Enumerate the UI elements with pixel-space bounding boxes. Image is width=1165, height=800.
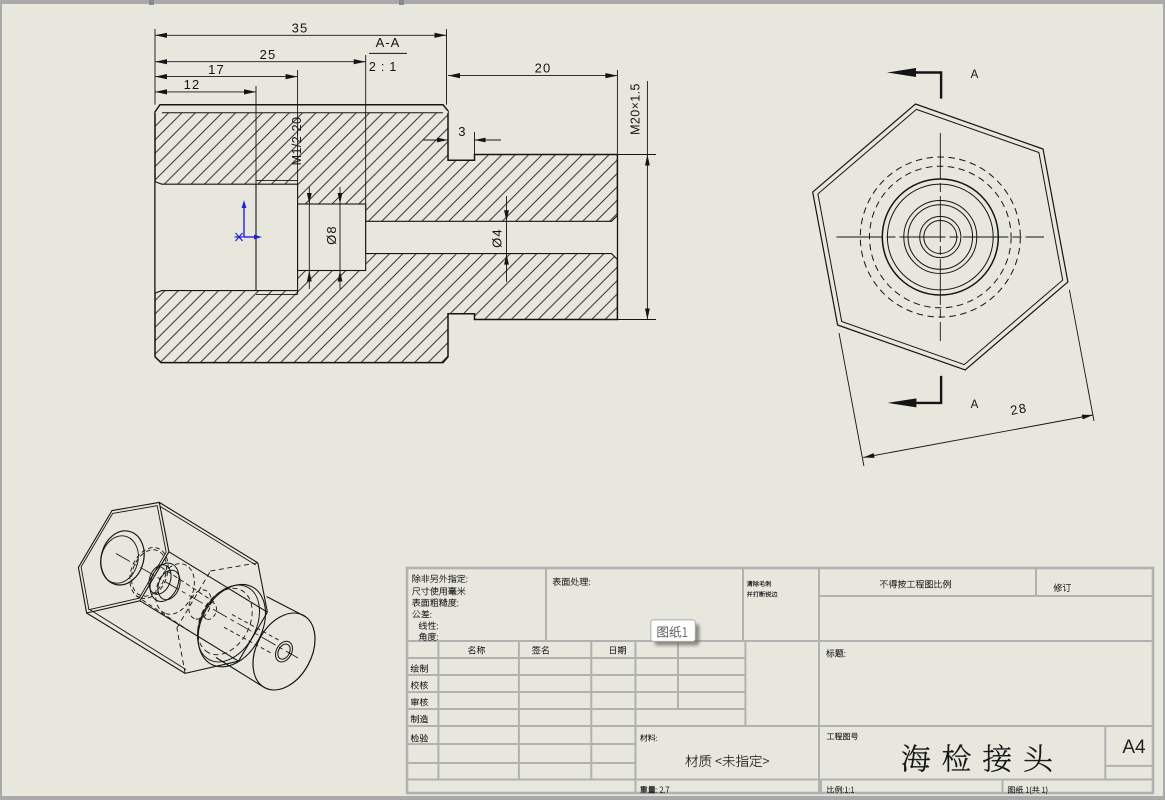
- svg-text:Ø4: Ø4: [490, 228, 505, 248]
- svg-text:A4: A4: [1122, 737, 1146, 758]
- svg-text:25: 25: [260, 47, 277, 62]
- svg-text:28: 28: [1009, 400, 1028, 418]
- svg-text:20: 20: [535, 61, 552, 76]
- svg-text:M20×1.5: M20×1.5: [629, 83, 643, 135]
- svg-text:3: 3: [458, 124, 466, 139]
- svg-text:2 : 1: 2 : 1: [369, 60, 397, 74]
- svg-text:A: A: [971, 69, 979, 81]
- svg-text:17: 17: [208, 62, 225, 77]
- svg-text:A-A: A-A: [376, 35, 401, 50]
- svg-text:12: 12: [184, 77, 201, 92]
- svg-text:M1/2-20: M1/2-20: [290, 117, 304, 166]
- svg-text:A: A: [971, 399, 979, 411]
- svg-text:Ø8: Ø8: [324, 225, 339, 245]
- svg-text:35: 35: [292, 21, 309, 36]
